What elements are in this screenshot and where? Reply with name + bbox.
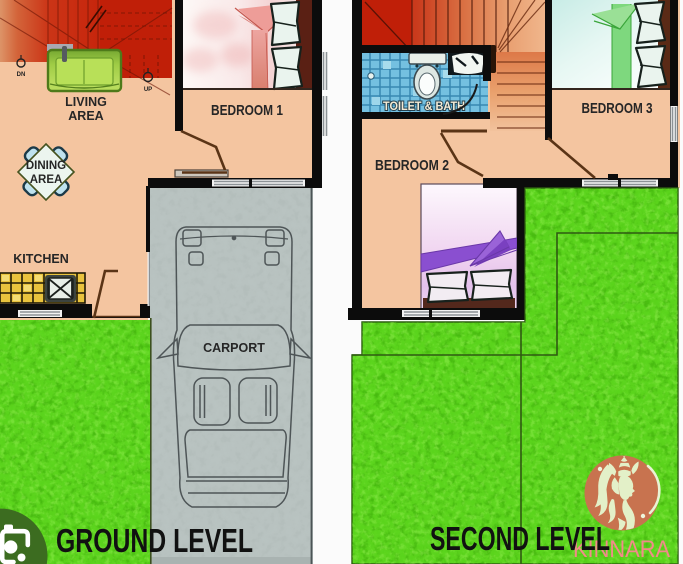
svg-text:BEDROOM 3: BEDROOM 3 <box>582 100 653 117</box>
svg-text:GROUND LEVEL: GROUND LEVEL <box>56 522 253 559</box>
svg-text:KITCHEN: KITCHEN <box>13 252 69 266</box>
svg-text:UP: UP <box>144 87 152 93</box>
svg-text:DN: DN <box>17 72 26 78</box>
svg-text:BEDROOM 2: BEDROOM 2 <box>375 157 449 174</box>
svg-text:AREA: AREA <box>30 174 63 186</box>
svg-text:AREA: AREA <box>68 109 103 123</box>
svg-text:SECOND LEVEL: SECOND LEVEL <box>430 520 610 557</box>
svg-text:CARPORT: CARPORT <box>203 341 265 355</box>
svg-text:LIVING: LIVING <box>65 95 107 109</box>
svg-text:BEDROOM 1: BEDROOM 1 <box>211 102 283 119</box>
svg-text:DINING: DINING <box>26 160 66 172</box>
